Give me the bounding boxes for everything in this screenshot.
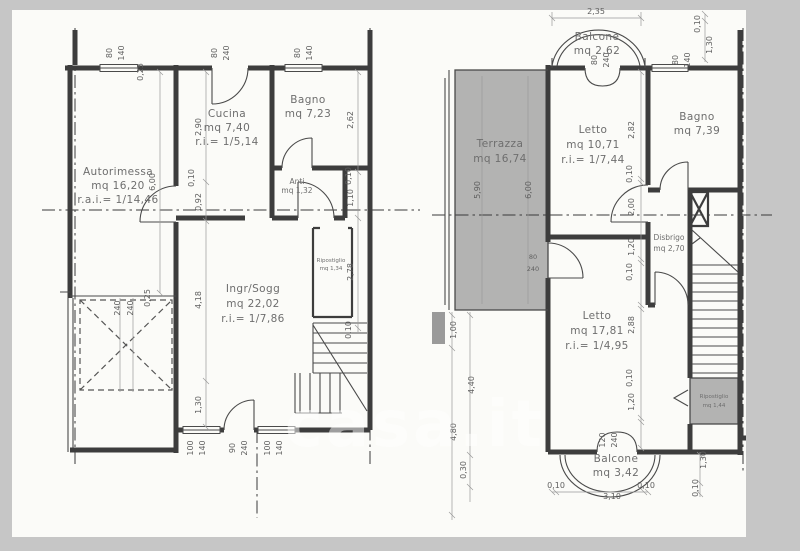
dim-label: 120 (598, 432, 607, 447)
dim-label: 80 (671, 55, 680, 65)
room-label-terrazza: Terrazza (476, 138, 524, 150)
dim-label: 90 (228, 443, 237, 453)
dim-label: 80 (210, 48, 219, 58)
room-area: mq 2,62 (574, 45, 620, 57)
dim-label: 140 (198, 440, 207, 455)
room-label-ripostiglio: Ripostiglio (317, 258, 346, 264)
room-area: mq 3,42 (593, 467, 639, 479)
room-label-bagno: Bagno (290, 94, 325, 106)
room-ratio: r.a.i.= 1/14,46 (77, 194, 158, 206)
dim-label: 0,10 (625, 165, 634, 183)
dim-label: 140 (305, 45, 314, 60)
dim-label: 80 (105, 48, 114, 58)
room-label-cucina: Cucina (208, 108, 246, 120)
dim-label: 2,90 (194, 118, 203, 136)
wall-stub (432, 312, 445, 344)
dim-label: 0,30 (459, 461, 468, 479)
dim-label: 0,10 (547, 481, 565, 490)
room-label-ripostiglio-upper: Ripostiglio (700, 394, 729, 400)
dim-label: 140 (683, 52, 692, 67)
ripostiglio-shaded-area (690, 378, 738, 424)
room-ratio: r.i.= 1/4,95 (565, 340, 628, 352)
room-area: mq 17,81 (570, 325, 624, 337)
room-label-letto-2: Letto (583, 310, 612, 322)
dim-label: 0,10 (637, 481, 655, 490)
room-label-balcone-bottom: Balcone (594, 453, 639, 465)
dim-label: 4,18 (194, 291, 203, 309)
room-area: mq 1,32 (281, 186, 312, 195)
dim-label: 240 (527, 265, 539, 273)
room-area: mq 1,34 (320, 266, 343, 272)
room-ratio: r.i.= 1/7,86 (221, 313, 284, 325)
casa-it-watermark: casa.it (285, 388, 545, 462)
room-label-bagno-upper: Bagno (679, 111, 714, 123)
dim-label: 6,00 (524, 181, 533, 199)
dim-label: 2,88 (627, 316, 636, 334)
dim-label: 140 (275, 440, 284, 455)
dim-label: 2,35 (587, 7, 605, 16)
dim-label: 1,30 (194, 396, 203, 414)
scanned-floorplan-page: 80 140 0,25 80 240 80 140 6,00 2,90 0,10… (0, 0, 800, 551)
room-area: mq 22,02 (226, 298, 280, 310)
dim-label: 0,10 (693, 15, 702, 33)
dim-label: 1,10 (346, 189, 355, 207)
room-area: mq 16,20 (91, 180, 145, 192)
dim-label: 1,00 (449, 321, 458, 339)
dim-label: 100 (186, 440, 195, 455)
dim-label: 240 (222, 45, 231, 60)
dim-label: 240 (113, 300, 122, 315)
room-ratio: r.i.= 1/5,14 (195, 136, 258, 148)
room-ratio: r.i.= 1/7,44 (561, 154, 624, 166)
room-label-letto-1: Letto (579, 124, 608, 136)
room-area: mq 7,23 (285, 108, 331, 120)
dim-label: 3,10 (603, 492, 621, 501)
dim-label: 2,78 (346, 263, 355, 281)
room-area: mq 7,40 (204, 122, 250, 134)
room-area: mq 16,74 (473, 153, 527, 165)
room-area: mq 7,39 (674, 125, 720, 137)
room-area: mq 1,44 (703, 403, 726, 409)
dim-label: 80 (293, 48, 302, 58)
room-area: mq 10,71 (566, 139, 620, 151)
dim-label: 1,30 (705, 36, 714, 54)
dim-label: 1,20 (627, 393, 636, 411)
dim-label: 240 (240, 440, 249, 455)
room-label-anti: Anti (290, 177, 305, 186)
dim-label: 240 (126, 300, 135, 315)
room-area: mq 2,70 (653, 244, 684, 253)
room-label-ingr-sogg: Ingr/Sogg (226, 283, 280, 295)
dim-label: 1,30 (699, 451, 708, 469)
floorplan-image: 80 140 0,25 80 240 80 140 6,00 2,90 0,10… (0, 0, 800, 551)
room-label-balcone-top: Balcone (575, 31, 620, 43)
dim-label: 2,00 (627, 198, 636, 216)
dim-label: 0,10 (625, 369, 634, 387)
dim-label: 0,10 (625, 263, 634, 281)
dim-label: 1,20 (627, 238, 636, 256)
dim-label: 0,10 (344, 167, 353, 185)
dim-label: 100 (263, 440, 272, 455)
room-label-disbrigo: Disbrigo (653, 233, 684, 242)
dim-label: 0,10 (344, 321, 353, 339)
terrazza-shaded-area (455, 70, 548, 310)
dim-label: 140 (117, 45, 126, 60)
dim-label: 0,10 (691, 479, 700, 497)
dim-label: 0,92 (194, 193, 203, 211)
dim-label: 0,25 (143, 289, 152, 307)
dim-label: 80 (529, 253, 537, 261)
dim-label: 240 (610, 432, 619, 447)
dim-label: 0,10 (187, 169, 196, 187)
dim-label: 2,82 (627, 121, 636, 139)
dim-label: 5,90 (473, 181, 482, 199)
room-label-autorimessa: Autorimessa (83, 166, 153, 178)
dim-label: 0,25 (136, 63, 145, 81)
dim-label: 2,62 (346, 111, 355, 129)
